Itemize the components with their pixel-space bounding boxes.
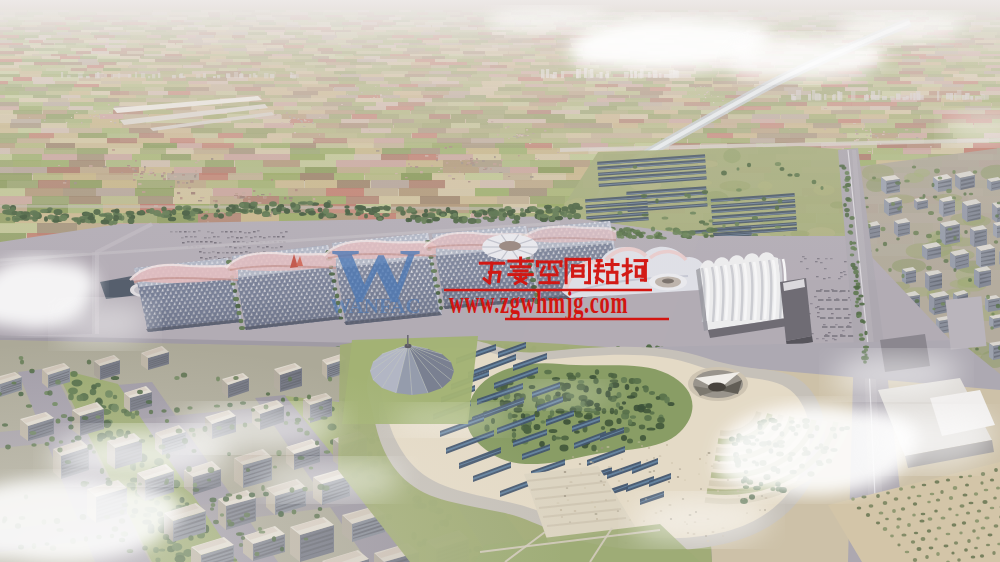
svg-text:WANFAC: WANFAC [330,294,421,318]
svg-text:www.zgwhmjg.com: www.zgwhmjg.com [449,286,628,320]
